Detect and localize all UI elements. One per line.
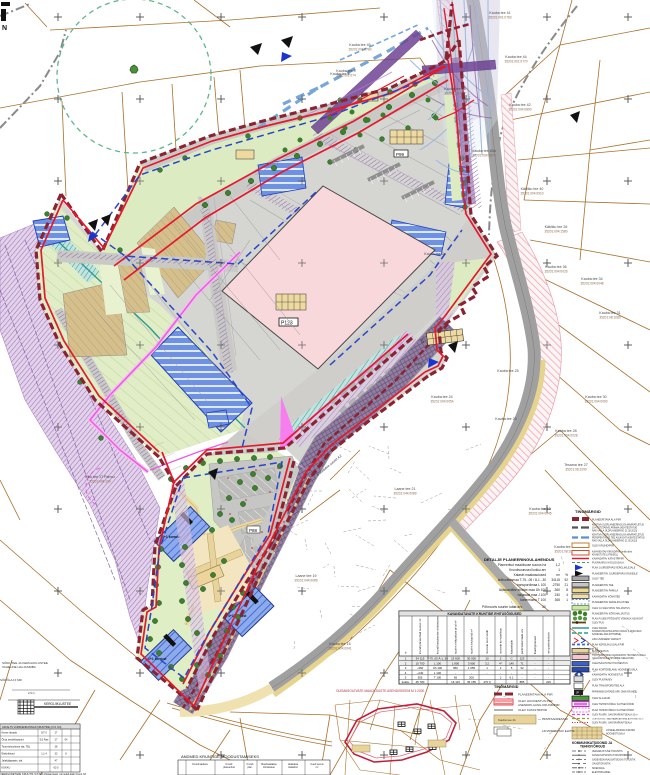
svg-text:Krundi: Krundi <box>226 763 233 766</box>
svg-text:35201:004:109: 35201:004:109 <box>89 480 110 484</box>
svg-text:Kauba tee 23: Kauba tee 23 <box>495 417 516 421</box>
svg-text:OLEV TEHNOVÕRGU KAITSEVÖÖND: OLEV TEHNOVÕRGU KAITSEVÖÖND <box>592 703 634 706</box>
svg-text:äri/tootmismaa T-75...05 / Ä-1: äri/tootmismaa T-75...05 / Ä-1...30 <box>498 578 546 582</box>
svg-text:SADEVEEKANALISATSIOONI TORUSTI: SADEVEEKANALISATSIOONI TORUSTIK <box>592 758 636 761</box>
svg-text:35201:001:0780: 35201:001:0780 <box>348 48 371 52</box>
svg-text:BUSSIPEATUS: BUSSIPEATUS <box>592 650 609 653</box>
svg-text:SADEVEE ÄRAJUHTIMINE): SADEVEE ÄRAJUHTIMINE) <box>592 633 621 636</box>
svg-text:34 115: 34 115 <box>416 657 425 661</box>
svg-text:63 0: 63 0 <box>54 767 59 770</box>
svg-text:TEHNOVÕRGUD: TEHNOVÕRGUD <box>580 744 606 749</box>
svg-text:Kauba tee 12: Kauba tee 12 <box>529 507 550 511</box>
svg-text:-: - <box>535 671 536 675</box>
svg-text:34115: 34115 <box>551 578 560 582</box>
svg-text:plan.: plan. <box>248 767 253 769</box>
svg-text:PLANEERITAV TEE: PLANEERITAV TEE <box>592 584 614 587</box>
svg-text:6.1: 6.1 <box>509 676 513 680</box>
svg-text:Kauba tee 46: Kauba tee 46 <box>444 87 465 91</box>
svg-text:TINGMÄRGID: TINGMÄRGID <box>575 509 601 514</box>
svg-text:35201:004:0045: 35201:004:0045 <box>528 512 551 516</box>
svg-text:5/7 0: 5/7 0 <box>41 732 47 735</box>
svg-text:2,5 m: 2,5 m <box>28 691 36 695</box>
svg-text:KAVANDATAV KRUNDIPIIR (tekib a: KAVANDATAV KRUNDIPIIR (tekib alles <box>592 551 633 554</box>
svg-text:226: 226 <box>546 680 551 684</box>
svg-text:3520:001:074: 3520:001:074 <box>336 74 356 78</box>
svg-text:PLANEERITAV PARKLA: PLANEERITAV PARKLA <box>592 590 618 593</box>
svg-text:(VÄLJASPOOL EHITAMINE KEELATUD: (VÄLJASPOOL EHITAMINE KEELATUD) <box>592 657 634 660</box>
svg-text:Käbliku tee 26: Käbliku tee 26 <box>545 225 568 229</box>
svg-text:VAHELINE HALJASRIBA: VAHELINE HALJASRIBA <box>2 665 36 669</box>
svg-text:35201:004:0890: 35201:004:0890 <box>508 108 531 112</box>
svg-text:Mardi 7: Mardi 7 <box>414 362 426 366</box>
svg-text:PLAN JUURDEPÄÄS KERGLIIKLEJALE: PLAN JUURDEPÄÄS KERGLIIKLEJALE <box>592 567 636 570</box>
svg-text:JUHTOTSTARVE ÄRIMAA (KEHTESTAT: JUHTOTSTARVE ÄRIMAA (KEHTESTATUD <box>592 527 638 530</box>
svg-text:KEHTIVA ÜLDPLANEERINGUGA MÄÄRA: KEHTIVA ÜLDPLANEERINGUGA MÄÄRATLETUD <box>592 524 644 527</box>
svg-text:LIIKLUSSKEEMI VARIANT: LIIKLUSSKEEMI VARIANT <box>592 638 621 641</box>
svg-text:-: - <box>522 676 523 680</box>
svg-text:Õli ja teedeklaatorid: Õli ja teedeklaatorid <box>2 739 25 742</box>
svg-text:Kauba tee 2a: Kauba tee 2a <box>424 252 445 256</box>
svg-text:PLANEERITAV KÕRGHALJASTUS: PLANEERITAV KÕRGHALJASTUS <box>592 613 630 616</box>
svg-text:92: 92 <box>564 578 568 582</box>
svg-text:Tesama tee 27: Tesama tee 27 <box>564 463 588 467</box>
svg-text:Üh 100: Üh 100 <box>433 666 443 670</box>
svg-text:-2750: -2750 <box>552 583 560 587</box>
svg-text:-: - <box>500 671 501 675</box>
svg-text:OLEV/LIKVID. SANITAARKAITSEALA: OLEV/LIKVID. SANITAARKAITSEALA/VÖÖND 50 … <box>592 718 644 721</box>
svg-text:OLEV/SÄILITATAV HOONESTUS: OLEV/SÄILITATAV HOONESTUS <box>592 662 628 665</box>
svg-text:Tootmishoolduse ala, TBL: Tootmishoolduse ala, TBL <box>2 746 31 749</box>
svg-text:Kauba tee 28: Kauba tee 28 <box>555 429 576 433</box>
svg-text:m²: m² <box>316 766 319 769</box>
svg-text:35201:044:0089: 35201:044:0089 <box>294 579 317 583</box>
svg-text:kinnistutest: kinnistutest <box>263 766 275 769</box>
svg-text:Kauba tee 25: Kauba tee 25 <box>497 369 518 373</box>
svg-text:L 100: L 100 <box>434 671 442 675</box>
svg-text:OLEV KRUNDIPIIR: OLEV KRUNDIPIIR <box>592 545 614 548</box>
svg-text:-: - <box>535 657 536 661</box>
svg-text:35201:004:0041: 35201:004:0041 <box>328 647 351 651</box>
svg-text:PLAN PUUDE-PÕÕSASTE VÕIMALIK A: PLAN PUUDE-PÕÕSASTE VÕIMALIK ASUKOHT <box>592 618 644 621</box>
svg-text:1,2: 1,2 <box>556 563 561 567</box>
svg-text:1: 1 <box>558 568 560 572</box>
svg-text:krundi kasutamise sihtotstarve: krundi kasutamise sihtotstarve <box>436 616 440 654</box>
svg-text:4: 4 <box>566 593 568 597</box>
svg-text:Kauba tee 31: Kauba tee 31 <box>599 311 620 315</box>
svg-text:650: 650 <box>453 666 458 670</box>
svg-text:kokku: kokku <box>402 680 410 684</box>
svg-text:KINNISTUTE LIITMISEL): KINNISTUTE LIITMISEL) <box>592 555 618 557</box>
svg-text:-: - <box>548 671 549 675</box>
svg-text:ANDMED KRUNTIDE MOODUSTAMISEKS: ANDMED KRUNTIDE MOODUSTAMISEKS <box>181 754 259 759</box>
svg-text:OLEV PUURKAEV: OLEV PUURKAEV <box>592 679 613 682</box>
svg-text:OLEV PUURK. SANITAARKAITSEALA: OLEV PUURK. SANITAARKAITSEALA 10 m <box>592 714 638 717</box>
svg-text:OLEV TEE: OLEV TEE <box>592 578 605 581</box>
svg-text:-: - <box>535 661 536 665</box>
svg-text:Kauba tee 41: Kauba tee 41 <box>498 718 516 722</box>
svg-text:KEHTIVA ÜLDPLANEERINGUGA MÄÄRA: KEHTIVA ÜLDPLANEERINGUGA MÄÄRATLETUD <box>592 534 644 537</box>
svg-text:1: 1 <box>566 598 568 602</box>
svg-text:OLEV ALAJAAM: OLEV ALAJAAM <box>592 697 610 700</box>
svg-text:140: 140 <box>509 661 514 665</box>
svg-text:Krundisuurused kokku arv: Krundisuurused kokku arv <box>509 568 546 572</box>
svg-text:Moodustatakse: Moodustatakse <box>261 763 277 766</box>
svg-text:-: - <box>548 676 549 680</box>
svg-text:35201:001:0760: 35201:001:0760 <box>488 16 511 20</box>
svg-text:35201:004:0870: 35201:004:0870 <box>472 154 495 158</box>
svg-text:Kauba tee 44: Kauba tee 44 <box>505 55 526 59</box>
svg-text:21: 21 <box>564 583 568 587</box>
svg-text:OLEV PUURK. SANITAARKAITSEALA: OLEV PUURK. SANITAARKAITSEALA <box>592 722 632 725</box>
svg-text:Laane tee 21: Laane tee 21 <box>395 487 416 491</box>
svg-text:VEEVARUSTUSE TORUSTIK: VEEVARUSTUSE TORUSTIK <box>592 750 623 753</box>
svg-text:1+1 korrust: 1+1 korrust <box>148 657 167 661</box>
svg-text:-: - <box>535 666 536 670</box>
svg-text:PERSPEKTIIVSE TEE ASUKOHT (KEH: PERSPEKTIIVSE TEE ASUKOHT (KEHTESTATUD <box>592 537 645 540</box>
svg-text:RAE VALLA ÜLDPLANEERING 21.05.: RAE VALLA ÜLDPLANEERING 21.05.2013) <box>592 530 637 533</box>
svg-text:PLANEERITAVA ALA PIIR: PLANEERITAVA ALA PIIR <box>518 693 554 697</box>
svg-text:Kauba tee 43a: Kauba tee 43a <box>472 149 495 153</box>
svg-text:OLEMASOLEVATE MAAÜKSUSTE ASEND: OLEMASOLEVATE MAAÜKSUSTE ASENDISKEEM M 1… <box>336 689 425 693</box>
svg-text:TINGMÄRGID: TINGMÄRGID <box>494 685 519 689</box>
svg-text:Pikk tee 17 Parmu: Pikk tee 17 Parmu <box>85 475 114 479</box>
svg-text:Kauba tee 36: Kauba tee 36 <box>545 265 566 269</box>
svg-text:Kauba tee 34: Kauba tee 34 <box>581 277 602 281</box>
svg-text:OLEV KATASTRIPIIR: OLEV KATASTRIPIIR <box>518 708 548 712</box>
svg-text:-: - <box>522 671 523 675</box>
svg-text:Liidetakse: Liidetakse <box>288 763 299 766</box>
svg-text:35201:004:0910: 35201:004:0910 <box>520 192 543 196</box>
svg-text:Kauba tee 45: Kauba tee 45 <box>349 43 370 47</box>
svg-text:T 100: T 100 <box>434 676 442 680</box>
svg-text:Uued suurus: Uued suurus <box>310 763 324 766</box>
svg-text:haljasala maa J 100: haljasala maa J 100 <box>518 593 547 597</box>
svg-text:-: - <box>471 671 472 675</box>
svg-text:Põhroovis suurim lubat arv: Põhroovis suurim lubat arv <box>482 605 522 609</box>
svg-text:PARKIMISKOHTADE ARV OMA KRUNDI: PARKIMISKOHTADE ARV OMA KRUNDIL <box>592 691 638 694</box>
svg-text:PLAN TRANSPORDITEE ALA: PLAN TRANSPORDITEE ALA <box>592 685 625 688</box>
svg-text:KORRASTATAV/RAJATAV KRAAV (LOO: KORRASTATAV/RAJATAV KRAAV (LOODUSLIK <box>592 630 642 633</box>
svg-text:Kauba tee 9: Kauba tee 9 <box>336 69 355 73</box>
svg-text:~360: ~360 <box>417 666 424 670</box>
svg-text:suurim brutopind m²: suurim brutopind m² <box>470 629 474 654</box>
svg-text:Kesse tänada: Kesse tänada <box>2 732 18 735</box>
svg-text:parkimiskohtade arv: parkimiskohtade arv <box>520 628 524 654</box>
svg-text:hoonete korruselisus: hoonete korruselisus <box>499 628 503 654</box>
svg-text:35201:004:0060: 35201:004:0060 <box>584 400 607 404</box>
svg-text:KAVANDATAV HOONESTUS: KAVANDATAV HOONESTUS <box>592 674 623 677</box>
svg-text:35201:004:0028: 35201:004:0028 <box>554 434 577 438</box>
svg-text:TOOTMISHOONE KAVANDATAV HOONES: TOOTMISHOONE KAVANDATAV HOONESTUSALA <box>592 654 646 657</box>
svg-text:35201:004:0054: 35201:004:0054 <box>430 400 453 404</box>
svg-text:RAE VALLA ÜLDPLANEERING 21.05.: RAE VALLA ÜLDPLANEERING 21.05.2013) <box>592 540 637 543</box>
svg-text:Laane tee 19: Laane tee 19 <box>296 574 317 578</box>
svg-text:GAASITORUSTIK: GAASITORUSTIK <box>592 763 611 766</box>
svg-text:71: 71 <box>520 661 524 665</box>
svg-text:~240: ~240 <box>417 671 424 675</box>
svg-text:35201:08:1090: 35201:08:1090 <box>565 468 586 472</box>
svg-text:Kauba tee 24: Kauba tee 24 <box>431 395 452 399</box>
svg-text:SIDEKANAL: SIDEKANAL <box>592 767 606 770</box>
svg-text:5/1 Rae: 5/1 Rae <box>40 739 49 742</box>
svg-text:470 0: 470 0 <box>483 680 491 684</box>
svg-text:35201:004:0048: 35201:004:0048 <box>580 282 603 286</box>
svg-text:10: 10 <box>485 657 489 661</box>
svg-text:-360: -360 <box>554 588 561 592</box>
svg-text:SÕKÕLAJ II MR: SÕKÕLAJ II MR <box>0 677 23 682</box>
svg-text:hoonete arv krundil: hoonete arv krundil <box>485 630 489 654</box>
svg-text:Kauba tee 42: Kauba tee 42 <box>509 103 530 107</box>
svg-text:1 055: 1 055 <box>468 666 476 670</box>
svg-text:L 100: L 100 <box>434 661 442 665</box>
svg-text:123: 123 <box>520 657 525 661</box>
svg-text:Käbliku tee 40: Käbliku tee 40 <box>521 187 544 191</box>
svg-text:35201:08:1080: 35201:08:1080 <box>599 316 620 320</box>
svg-text:min parkimiskohti: min parkimiskohti <box>547 632 551 654</box>
svg-text:VÄIKEELAMUMAA KRUNDI: VÄIKEELAMUMAA KRUNDI <box>606 729 635 732</box>
svg-text:Kauba tee 41: Kauba tee 41 <box>489 11 510 15</box>
svg-text:N: N <box>2 25 7 32</box>
svg-text:Kauba tee 15: Kauba tee 15 <box>329 642 350 646</box>
svg-text:8: 8 <box>566 588 568 592</box>
svg-text:ASENDIPLAANIL KRUNDIPIIR: ASENDIPLAANIL KRUNDIPIIR <box>518 703 560 707</box>
svg-text:LIKVIDEERITAV EHITIS: LIKVIDEERITAV EHITIS <box>542 729 574 733</box>
svg-text:lisatingimused: lisatingimused <box>533 636 537 654</box>
svg-text:-: - <box>535 676 536 680</box>
svg-text:KOKKU: KOKKU <box>2 767 11 770</box>
svg-text:nr: nr <box>404 651 408 654</box>
svg-text:32: 32 <box>520 666 524 670</box>
svg-text:Planeeritud maaüksuse suurus h: Planeeritud maaüksuse suurus ha <box>498 563 546 567</box>
svg-text:PLAN AADRESSID: PLAN AADRESSID <box>542 717 569 721</box>
svg-text:10 700: 10 700 <box>416 661 425 665</box>
svg-text:Elektrikkord: Elektrikkord <box>2 753 16 756</box>
svg-text:-: - <box>548 661 549 665</box>
svg-text:PLAN KERGLIIKLUSALA PIIR: PLAN KERGLIIKLUSALA PIIR <box>592 644 625 647</box>
svg-text:Krundi: Krundi <box>247 763 254 766</box>
svg-text:240: 240 <box>555 593 561 597</box>
svg-text:%: % <box>565 573 568 577</box>
svg-text:C: C <box>510 657 512 661</box>
svg-text:transpordimaa L 100: transpordimaa L 100 <box>517 583 546 587</box>
svg-text:DETALJE PLANEERINGULAHENDUS: DETALJE PLANEERINGULAHENDUS <box>484 557 555 562</box>
svg-text:m²: m² <box>556 573 560 577</box>
svg-text:-: - <box>455 671 456 675</box>
svg-text:PLANEERITAV JUURDEPÄÄS KRUNDIL: PLANEERITAV JUURDEPÄÄS KRUNDILE <box>592 573 638 576</box>
svg-text:30: 30 <box>542 605 546 609</box>
svg-text:OLEV KRAAV: OLEV KRAAV <box>592 627 607 630</box>
svg-text:-: - <box>511 671 512 675</box>
svg-text:365: 365 <box>418 676 423 680</box>
svg-text:35201:001:077: 35201:001:077 <box>444 92 465 96</box>
svg-text:35201:004:0026: 35201:004:0026 <box>544 270 567 274</box>
svg-text:P99: P99 <box>396 152 405 157</box>
svg-text:-: - <box>548 666 549 670</box>
svg-text:16 115: 16 115 <box>451 680 460 684</box>
svg-text:1,1 4: 1,1 4 <box>41 753 47 756</box>
svg-text:KERGLIIKLUSTEE: KERGLIIKLUSTEE <box>44 702 71 706</box>
svg-text:13 600: 13 600 <box>451 657 460 661</box>
svg-text:KAVANDATAV KÕNNITEE: KAVANDATAV KÕNNITEE <box>592 596 620 599</box>
svg-text:35201:004:1580: 35201:004:1580 <box>544 230 567 234</box>
svg-text:planeeritud: planeeritud <box>223 766 235 769</box>
svg-text:885: 885 <box>520 680 525 684</box>
svg-text:PLANEERITAV KERGLIIKLUSTEE: PLANEERITAV KERGLIIKLUSTEE <box>592 601 630 604</box>
svg-text:PLANEERITAVA ALA PIIR: PLANEERITAVA ALA PIIR <box>592 519 621 522</box>
svg-text:Kauba tee 30: Kauba tee 30 <box>585 395 606 399</box>
svg-text:HOONESTUSALA: HOONESTUSALA <box>606 733 625 736</box>
svg-text:suurim ehitusaluse pind m²: suurim ehitusaluse pind m² <box>454 621 458 654</box>
svg-text:Katastri maakasutused: Katastri maakasutused <box>514 573 547 577</box>
svg-text:PLAN KORTERELAMU HOONESTUSALA: PLAN KORTERELAMU HOONESTUSALA <box>592 669 638 672</box>
svg-text:-: - <box>487 671 488 675</box>
svg-text:KAVANDATAV KATASTRIPIIR: KAVANDATAV KATASTRIPIIR <box>592 558 624 561</box>
svg-text:65: 65 <box>454 676 458 680</box>
svg-text:katastrist: katastrist <box>288 766 298 769</box>
svg-text:KANALISATSIOONI TORUSTIK: KANALISATSIOONI TORUSTIK <box>592 754 625 757</box>
svg-text:ASFALTS VÄRSKENDATAVAD KRUNTID: ASFALTS VÄRSKENDATAVAD KRUNTIDE (CV1 3/4… <box>2 726 62 729</box>
svg-text:PUURKAEVU HOOLDUSALA: PUURKAEVU HOOLDUSALA <box>592 562 624 565</box>
svg-text:35201:044:0089: 35201:044:0089 <box>393 492 416 496</box>
svg-text:-: - <box>548 657 549 661</box>
svg-text:PLAN TEHNOVÕRGU KAITSEVÖÖND: PLAN TEHNOVÕRGU KAITSEVÖÖND <box>592 709 634 712</box>
svg-text:ELEKTRIKAABEL: ELEKTRIKAABEL <box>592 771 611 774</box>
svg-text:3 900: 3 900 <box>468 661 476 665</box>
svg-text:3.2: 3.2 <box>485 661 489 665</box>
svg-text:P88: P88 <box>249 528 258 533</box>
svg-text:200: 200 <box>469 676 474 680</box>
svg-text:Jalakäijapaats, tait.: Jalakäijapaats, tait. <box>2 760 24 763</box>
svg-text:Ühiskondlike ehitiste maa Üh 1: Ühiskondlike ehitiste maa Üh 100 <box>499 588 547 592</box>
svg-text:45 780: 45 780 <box>416 680 425 684</box>
svg-text:30 000: 30 000 <box>467 657 476 661</box>
svg-text:KAVANDATAVATE KRUNTIDE EHITUSÕ: KAVANDATAVATE KRUNTIDE EHITUSÕIGUSED <box>447 611 522 616</box>
svg-text:korterelamu T 100: korterelamu T 100 <box>520 598 546 602</box>
svg-text:Krundi aadress: Krundi aadress <box>192 763 208 766</box>
svg-text:35 155: 35 155 <box>467 680 476 684</box>
svg-text:katusekalle: katusekalle <box>510 640 514 654</box>
svg-text:T-75..05 Ä-1..30: T-75..05 Ä-1..30 <box>427 657 448 661</box>
svg-text:OLEV PUU: OLEV PUU <box>592 622 604 625</box>
svg-text:365: 365 <box>555 598 561 602</box>
svg-text:1 800: 1 800 <box>452 661 460 665</box>
svg-text:35201:001:0770: 35201:001:0770 <box>504 60 527 64</box>
svg-text:krundi planeeritud suurus m²: krundi planeeritud suurus m² <box>418 618 422 654</box>
svg-text:OLEV JA SÄILITATAV HALJASTUS: OLEV JA SÄILITATAV HALJASTUS <box>592 607 630 610</box>
